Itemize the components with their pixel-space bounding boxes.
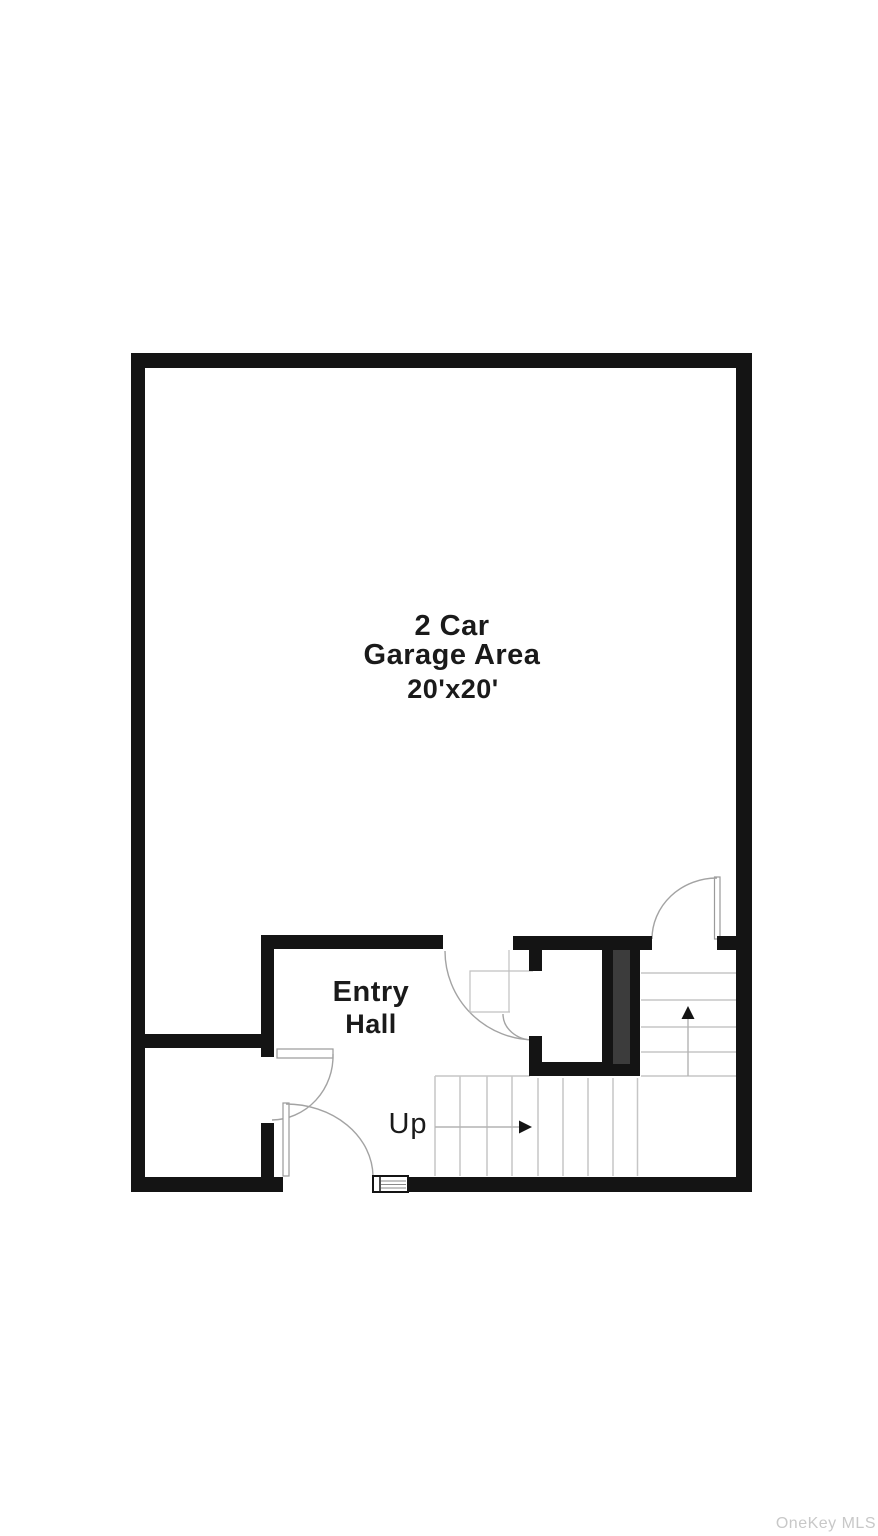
closet-bottom-wall <box>529 1062 640 1076</box>
floorplan-drawing: 2 Car Garage Area 20'x20' Entry Hall Up <box>0 0 878 1536</box>
entry-hall-label-line1: Entry <box>333 976 410 1008</box>
storage-room-top-wall <box>131 1034 274 1048</box>
side-door-jamb-wall <box>717 936 738 950</box>
storage-room-door <box>272 1049 333 1120</box>
watermark: OneKey MLS <box>776 1515 876 1533</box>
closet-door-leaf-lines <box>470 971 533 1012</box>
wall-left <box>131 353 145 1192</box>
garage-label-line2: Garage Area <box>364 639 541 671</box>
up-arrow-icon <box>682 1006 695 1019</box>
entry-hall-top-wall <box>261 935 443 949</box>
wall-chase-shaded <box>613 950 630 1064</box>
closet-top-wall <box>513 936 652 950</box>
garage-label-line1: 2 Car <box>414 610 489 642</box>
entry-hall-label-line2: Hall <box>345 1009 397 1039</box>
garage-entry-door <box>445 951 535 1040</box>
front-door-threshold <box>373 1176 408 1192</box>
stairs-lower-flight <box>435 1076 638 1176</box>
wall-right <box>736 353 752 1192</box>
door-leaf <box>283 1103 289 1176</box>
closet-right-wall <box>602 950 613 1064</box>
closet-left-wall-lower-stub <box>529 1036 542 1066</box>
floorplan-page: 2 Car Garage Area 20'x20' Entry Hall Up … <box>0 0 878 1536</box>
room-labels: 2 Car Garage Area 20'x20' Entry Hall Up <box>333 610 541 1140</box>
entry-hall-left-wall <box>261 935 274 1057</box>
door-swing-arc <box>272 1054 333 1120</box>
closet-doors <box>470 950 533 1040</box>
door-leaf <box>715 877 721 939</box>
garage-dimensions-label: 20'x20' <box>407 674 498 704</box>
wall-bottom-left-segment <box>131 1177 283 1192</box>
garage-side-door <box>652 877 720 939</box>
door-swing-arc <box>286 1104 373 1176</box>
stair-side-wall <box>630 950 640 1064</box>
door-leaf <box>277 1049 333 1058</box>
door-swing-arc <box>445 951 535 1040</box>
right-arrow-icon <box>519 1121 532 1134</box>
exterior-walls <box>131 353 752 1192</box>
entry-hall-left-wall-stub <box>261 1123 274 1179</box>
door-swing-arc <box>652 878 717 939</box>
wall-top <box>131 353 752 368</box>
stairs-up-label: Up <box>388 1108 427 1140</box>
wall-bottom-right-segment <box>408 1177 752 1192</box>
closet-left-wall-upper-stub <box>529 950 542 971</box>
